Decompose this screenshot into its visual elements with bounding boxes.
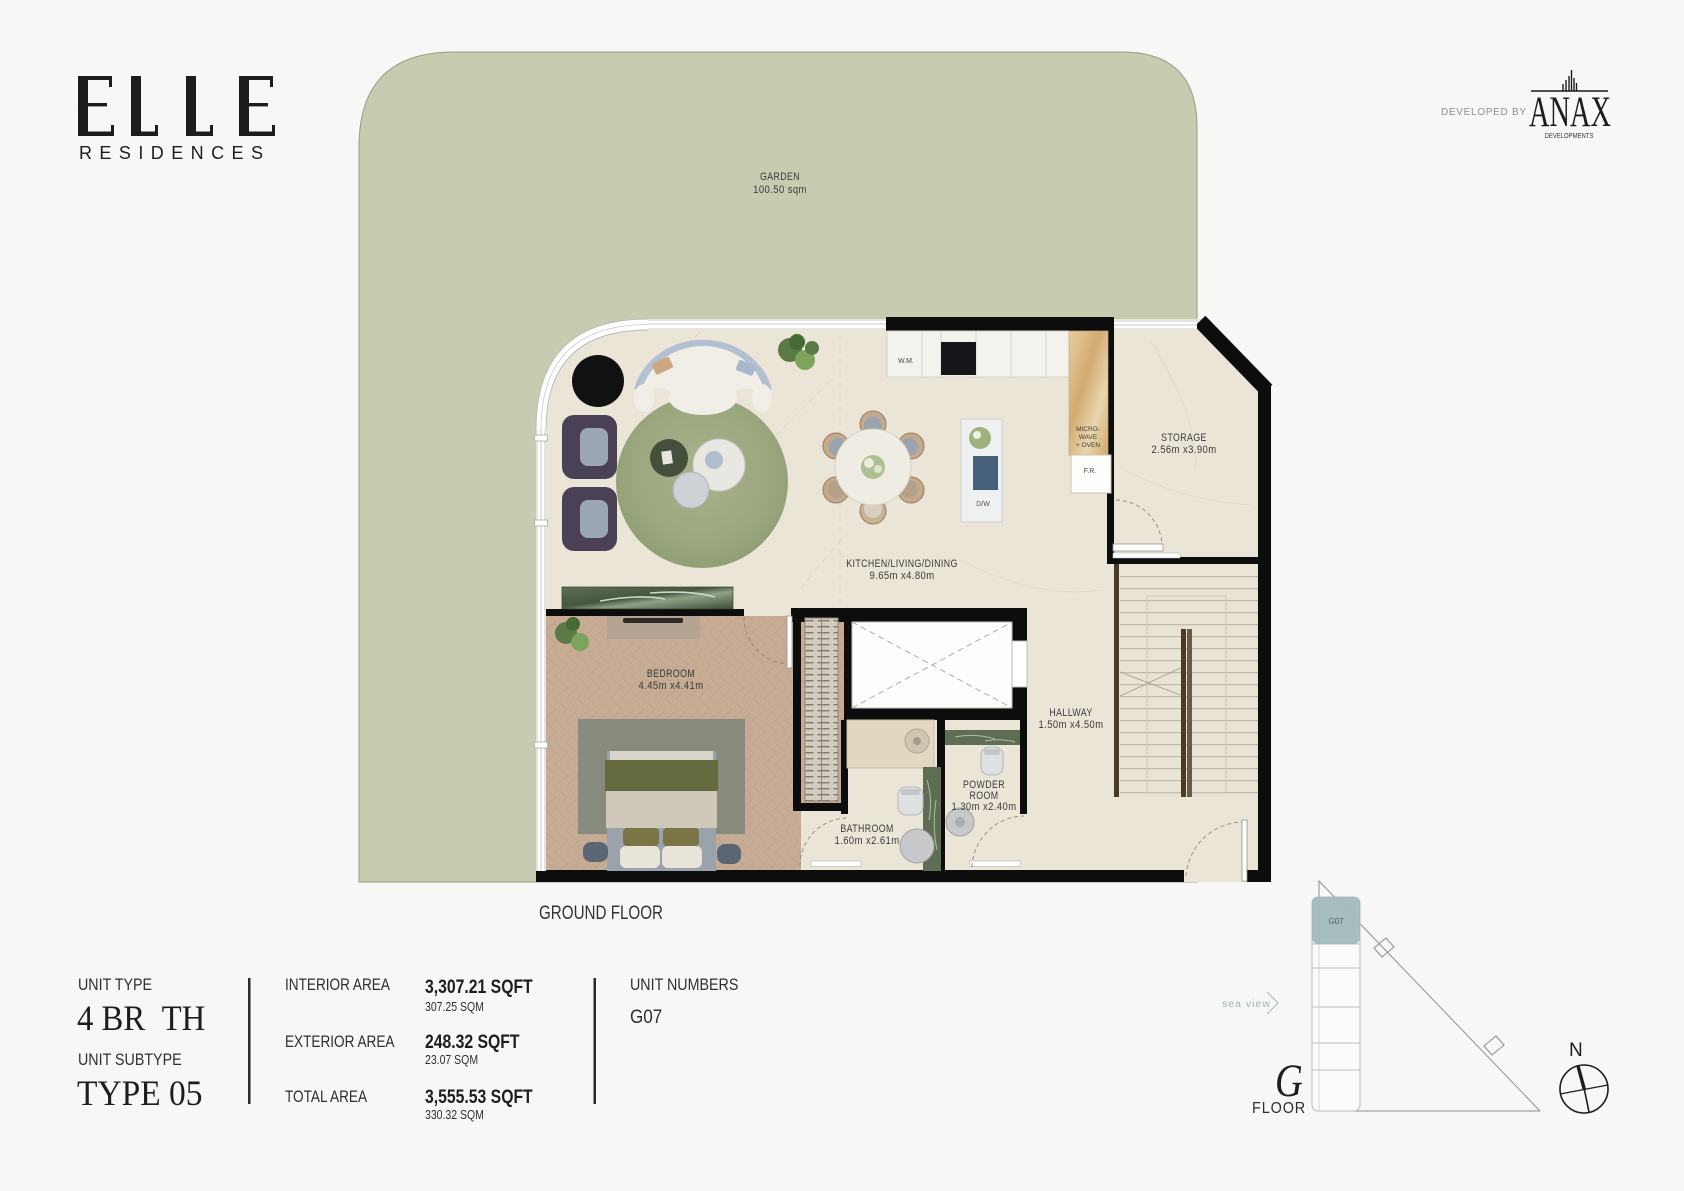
svg-text:F.R.: F.R. bbox=[1084, 468, 1097, 475]
svg-text:G07: G07 bbox=[1328, 917, 1344, 926]
svg-text:MICRO-: MICRO- bbox=[1076, 426, 1100, 433]
svg-text:BATHROOM: BATHROOM bbox=[840, 823, 893, 835]
svg-text:STORAGE: STORAGE bbox=[1161, 432, 1207, 444]
svg-text:DEVELOPMENTS: DEVELOPMENTS bbox=[1545, 133, 1594, 141]
svg-text:4 BR TH: 4 BR TH bbox=[77, 999, 205, 1039]
svg-text:1.60m x2.61m: 1.60m x2.61m bbox=[834, 835, 899, 847]
svg-text:INTERIOR AREA: INTERIOR AREA bbox=[285, 976, 391, 995]
svg-text:1.50m x4.50m: 1.50m x4.50m bbox=[1038, 719, 1103, 731]
svg-text:HALLWAY: HALLWAY bbox=[1049, 707, 1092, 719]
svg-text:3,555.53 SQFT: 3,555.53 SQFT bbox=[425, 1086, 533, 1108]
svg-text:GARDEN: GARDEN bbox=[760, 171, 800, 183]
svg-text:+ OVEN: + OVEN bbox=[1076, 442, 1100, 449]
svg-text:TYPE 05: TYPE 05 bbox=[77, 1073, 203, 1113]
svg-text:23.07 SQM: 23.07 SQM bbox=[425, 1054, 478, 1067]
svg-text:G07: G07 bbox=[630, 1006, 662, 1027]
svg-text:sea view: sea view bbox=[1222, 998, 1271, 1010]
svg-text:248.32 SQFT: 248.32 SQFT bbox=[425, 1031, 520, 1053]
svg-text:BEDROOM: BEDROOM bbox=[647, 668, 695, 680]
svg-text:WAVE: WAVE bbox=[1079, 434, 1098, 441]
svg-text:ANAX: ANAX bbox=[1529, 88, 1611, 135]
svg-text:UNIT SUBTYPE: UNIT SUBTYPE bbox=[78, 1051, 182, 1069]
svg-text:D/W: D/W bbox=[976, 501, 990, 508]
svg-text:4.45m x4.41m: 4.45m x4.41m bbox=[638, 680, 703, 692]
svg-text:TOTAL AREA: TOTAL AREA bbox=[285, 1088, 368, 1107]
svg-text:2.56m x3.90m: 2.56m x3.90m bbox=[1151, 444, 1216, 456]
svg-text:GROUND FLOOR: GROUND FLOOR bbox=[539, 901, 663, 923]
svg-text:UNIT NUMBERS: UNIT NUMBERS bbox=[630, 976, 738, 994]
svg-text:307.25 SQM: 307.25 SQM bbox=[425, 1001, 484, 1014]
svg-text:FLOOR: FLOOR bbox=[1252, 1099, 1306, 1117]
svg-text:N: N bbox=[1569, 1040, 1583, 1061]
svg-text:1.30m x2.40m: 1.30m x2.40m bbox=[951, 801, 1016, 813]
svg-text:RESIDENCES: RESIDENCES bbox=[79, 143, 263, 163]
svg-text:330.32 SQM: 330.32 SQM bbox=[425, 1109, 484, 1122]
svg-text:9.65m x4.80m: 9.65m x4.80m bbox=[869, 570, 934, 582]
svg-text:W.M.: W.M. bbox=[898, 358, 914, 365]
svg-text:UNIT TYPE: UNIT TYPE bbox=[78, 976, 152, 994]
svg-text:EXTERIOR AREA: EXTERIOR AREA bbox=[285, 1033, 395, 1052]
svg-text:KITCHEN/LIVING/DINING: KITCHEN/LIVING/DINING bbox=[846, 558, 957, 570]
svg-text:100.50 sqm: 100.50 sqm bbox=[753, 184, 807, 196]
svg-text:DEVELOPED BY: DEVELOPED BY bbox=[1441, 107, 1526, 118]
svg-text:3,307.21 SQFT: 3,307.21 SQFT bbox=[425, 976, 533, 998]
